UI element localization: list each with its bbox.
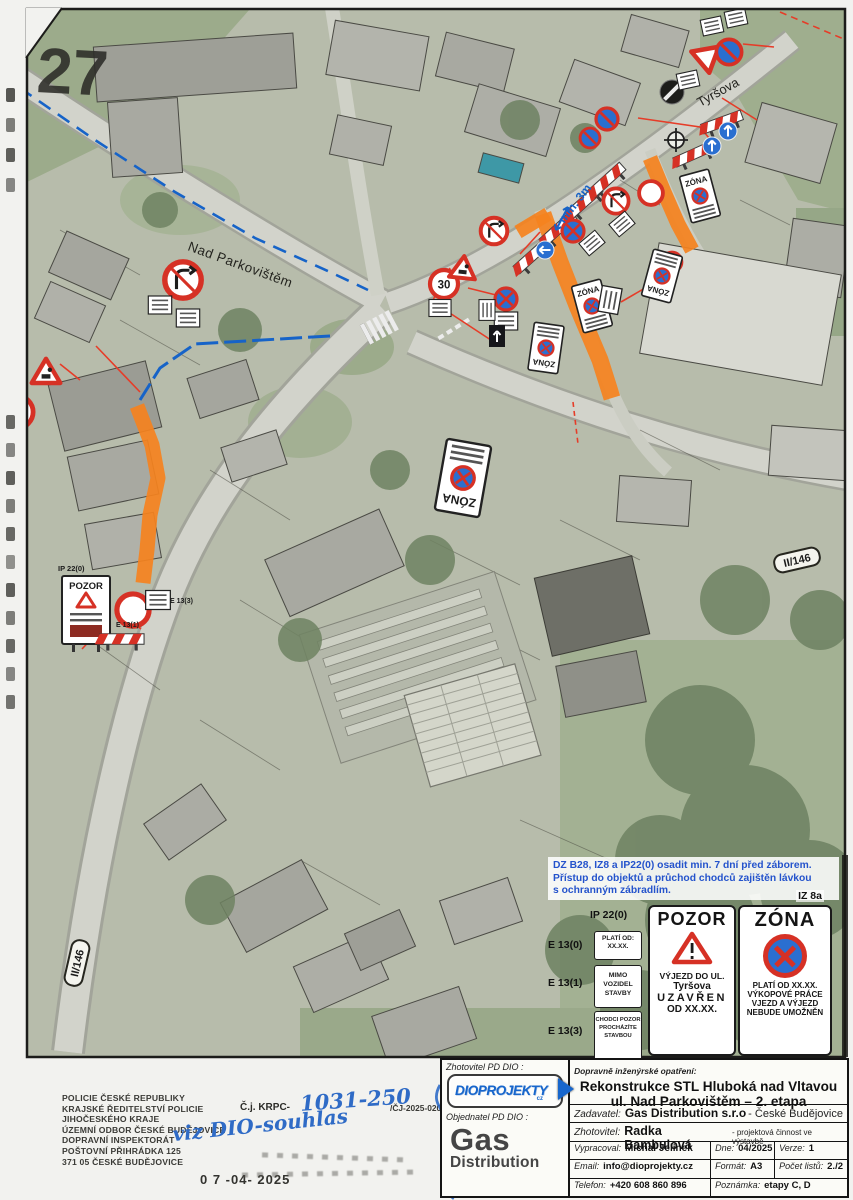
ip22-label: IP 22(0) [590, 909, 627, 921]
zona-line4: NEBUDE UMOŽNĚN [740, 1008, 830, 1017]
logo-arrow-icon [558, 1078, 574, 1100]
dne-value: 04/2025 [738, 1143, 772, 1154]
title-block-right: Dopravně inženýrské opatření: Rekonstruk… [570, 1060, 847, 1196]
pozor-line1: VÝJEZD DO UL. [650, 971, 734, 981]
pocet-value: 2./2 [827, 1161, 843, 1172]
format-label: Formát: [715, 1161, 746, 1171]
poznamka-value: etapy C, D [764, 1180, 810, 1191]
sheet-number: 27 [35, 34, 110, 110]
title-block: Zhotovitel PD DIO : DIOPROJEKTY cz Objed… [440, 1058, 849, 1198]
pocet-label: Počet listů: [779, 1161, 823, 1171]
iz8a-label: IZ 8a [796, 890, 824, 902]
vypracoval-value: Michal Jelínek [625, 1143, 693, 1154]
telefon-row: Telefon:+420 608 860 896 Poznámka:etapy … [570, 1179, 847, 1196]
pozor-title: POZOR [650, 909, 734, 930]
project-title-line1: Rekonstrukce STL Hluboká nad Vltavou [574, 1079, 843, 1094]
zadavatel-row: Zadavatel: Gas Distribution s.r.o - Česk… [570, 1105, 847, 1123]
vypracoval-row: Vypracoval:Michal Jelínek Dne:04/2025 Ve… [570, 1142, 847, 1160]
map-code-ip22: IP 22(0) [58, 564, 85, 573]
objednatel-label: Objednatel PD DIO : [446, 1112, 528, 1122]
e13-0-line1: PLATÍ OD: [595, 935, 641, 943]
email-value: info@dioprojekty.cz [603, 1161, 693, 1172]
scanned-dio-sheet: 30 ZÓNA POZOR [0, 0, 853, 1200]
zadavatel-label: Zadavatel: [574, 1109, 621, 1120]
e13-1-board: MIMO VOZIDEL STAVBY [594, 965, 642, 1008]
e13-0-board: PLATÍ OD: XX.XX. [594, 931, 642, 960]
verze-value: 1 [809, 1143, 814, 1154]
no-stopping-icon [763, 934, 807, 978]
map-code-e13-3: E 13(3) [170, 598, 193, 605]
email-label: Email: [574, 1161, 599, 1171]
legend-panel: DZ B28, IZ8 a IP22(0) osadit min. 7 dní … [548, 857, 832, 1058]
dioprojekty-logo: DIOPROJEKTY cz [447, 1074, 563, 1108]
e13-3-board: CHODCI POZOR PROCHÁZÍTE STAVBOU [594, 1011, 642, 1061]
warning-triangle-icon [671, 930, 713, 966]
zona-title: ZÓNA [740, 909, 830, 932]
pozor-board: POZOR VÝJEZD DO UL. Tyršova UZAVŘEN OD X… [648, 905, 736, 1056]
logo-text: DIOPROJEKTY [455, 1083, 547, 1098]
legend-note-line3: s ochranným zábradlím. [553, 885, 835, 898]
pozor-line3: UZAVŘEN [650, 992, 734, 1004]
telefon-value: +420 608 860 896 [610, 1180, 687, 1191]
gas-distribution-logo: Gas Distribution [450, 1126, 539, 1172]
title-block-left: Zhotovitel PD DIO : DIOPROJEKTY cz Objed… [442, 1060, 570, 1196]
verze-label: Verze: [779, 1143, 805, 1153]
map-code-e13-1: E 13(1) [116, 622, 139, 629]
gas-name1: Gas [450, 1126, 539, 1154]
email-row: Email:info@dioprojekty.cz Formát:A3 Poče… [570, 1160, 847, 1178]
e13-1-label: E 13(1) [548, 977, 582, 989]
zona-board: ZÓNA PLATÍ OD XX.XX. VÝKOPOVÉ PRÁCE VJEZ… [738, 905, 832, 1056]
zona-line1: PLATÍ OD XX.XX. [740, 981, 830, 990]
gas-name2: Distribution [450, 1154, 539, 1172]
legend-note-line2: Přístup do objektů a průchod chodců zaji… [553, 873, 835, 886]
zhotovitel-row: Zhotovitel: Radka Bambulová - projektová… [570, 1123, 847, 1142]
title-head: Dopravně inženýrské opatření: Rekonstruk… [570, 1060, 847, 1105]
e13-0-label: E 13(0) [548, 939, 582, 951]
logo-suffix: cz [537, 1096, 543, 1102]
vypracoval-label: Vypracoval: [574, 1143, 621, 1153]
zadavatel-value: Gas Distribution s.r.o [625, 1106, 746, 1120]
zhotovitel-label: Zhotovitel: [574, 1127, 620, 1138]
zona-line2: VÝKOPOVÉ PRÁCE [740, 990, 830, 999]
format-value: A3 [750, 1161, 762, 1172]
e13-0-line2: XX.XX. [595, 943, 641, 951]
zadavatel-suffix: - České Budějovice [748, 1108, 843, 1120]
poznamka-label: Poznámka: [715, 1180, 760, 1190]
e13-3-label: E 13(3) [548, 1025, 582, 1037]
legend-note-line1: DZ B28, IZ8 a IP22(0) osadit min. 7 dní … [553, 860, 835, 873]
scan-artifacts [6, 88, 15, 709]
police-stamp: POLICIE ČESKÉ REPUBLIKY KRAJSKÉ ŘEDITELS… [62, 1093, 457, 1198]
dne-label: Dne: [715, 1143, 734, 1153]
zona-line3: VJEZD A VÝJEZD [740, 999, 830, 1008]
telefon-label: Telefon: [574, 1180, 606, 1190]
zhotovitel-pd-label: Zhotovitel PD DIO : [442, 1060, 568, 1074]
pozor-line4: OD XX.XX. [650, 1004, 734, 1015]
pozor-line2: Tyršova [650, 981, 734, 992]
opatreni-label: Dopravně inženýrské opatření: [574, 1066, 696, 1076]
